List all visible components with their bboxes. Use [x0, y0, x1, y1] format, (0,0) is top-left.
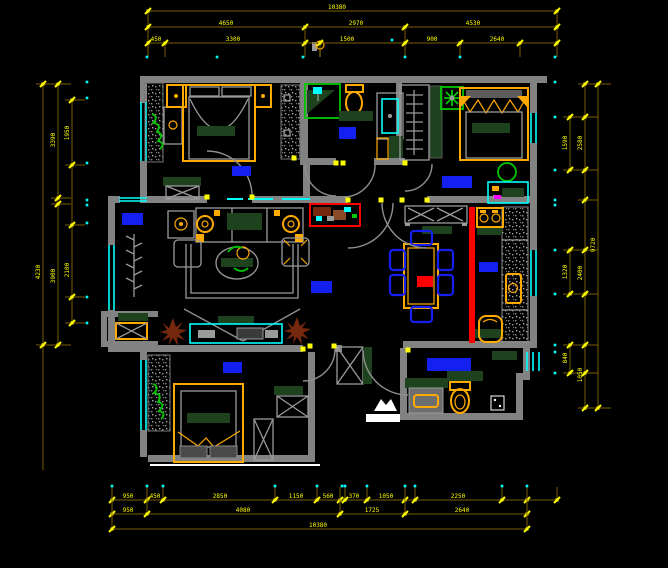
side-table-left: [168, 211, 194, 238]
armchair-left: [174, 240, 201, 267]
datum-dot: [86, 199, 89, 202]
hinge-dot: [292, 156, 297, 161]
dim-text: 9720: [590, 237, 597, 252]
bathroom1-label: [339, 127, 356, 139]
shower: [305, 84, 340, 118]
datum-dot: [86, 81, 89, 84]
datum-dot: [274, 485, 277, 488]
bedroom1: [145, 83, 300, 199]
bathroom2-label: [427, 358, 471, 371]
dim-text: 3390: [50, 132, 57, 147]
hinge-dot: [406, 348, 411, 353]
hinge-dot: [400, 198, 405, 203]
datum-dot: [344, 485, 347, 488]
dim-text: 2640: [455, 507, 470, 514]
datum-dot: [554, 204, 557, 207]
datum-dot: [554, 116, 557, 119]
shelf-green: [274, 386, 303, 395]
cabinet-v: [254, 419, 273, 460]
living-room: [116, 208, 311, 346]
dim-text: 3300: [226, 36, 241, 43]
dim-text: 2850: [213, 493, 228, 500]
bedroom1-label: [232, 166, 251, 176]
double-bed: [174, 384, 243, 462]
bedroom2-window: [531, 113, 536, 143]
dim-text: 950: [123, 507, 134, 514]
hinge-dot: [250, 195, 255, 200]
cad-drawing-area[interactable]: 1038046502970453045033001500900264095045…: [0, 0, 668, 568]
dim-text: 840: [562, 352, 569, 363]
double-bed: [183, 85, 255, 161]
datum-dot: [526, 485, 529, 488]
floor-plant-left: [160, 318, 187, 346]
hinge-dot: [332, 344, 337, 349]
bedroom2-label: [442, 176, 472, 188]
dim-text: 4650: [219, 20, 234, 27]
datum-dot: [341, 485, 344, 488]
storage-cabinet: [337, 347, 372, 384]
datum-dot: [554, 249, 557, 252]
dim-text: 2580: [577, 135, 584, 150]
dresser: [164, 107, 182, 144]
desk-chair: [498, 163, 516, 181]
dim-text: 1320: [562, 264, 569, 279]
datum-dot: [86, 222, 89, 225]
dim-text: 1500: [340, 36, 355, 43]
dim-text: 1150: [289, 493, 304, 500]
vanity: [409, 388, 443, 413]
hinge-dot: [341, 161, 346, 166]
datum-dot: [366, 485, 369, 488]
floor-plant-right: [284, 317, 311, 345]
bench-top: [163, 177, 201, 186]
dim-text: 1590: [562, 135, 569, 150]
corridor: [337, 347, 400, 422]
datum-dot: [404, 485, 407, 488]
hinge-dot: [205, 195, 210, 200]
dim-text: 2640: [490, 36, 505, 43]
dim-text: 1050: [577, 367, 584, 382]
datum-dot: [86, 204, 89, 207]
double-bed: [460, 88, 528, 160]
dim-text: 10380: [309, 522, 327, 529]
tv-shelf: [218, 316, 254, 324]
dim-text: 1950: [64, 125, 71, 140]
dim-text: 1725: [365, 507, 380, 514]
sliding-door-track: [469, 207, 475, 343]
dresser-knob: [169, 121, 177, 129]
dim-text: 450: [151, 36, 162, 43]
dim-text: 370: [349, 493, 360, 500]
datum-dot: [554, 372, 557, 375]
stove: [477, 208, 503, 227]
door-arcs: [207, 151, 432, 395]
datum-dot: [554, 293, 557, 296]
dining-label: [311, 281, 332, 293]
dining-room: [390, 206, 467, 322]
tv-console: [184, 309, 300, 343]
kitchen-window: [531, 250, 536, 296]
living-left-window: [109, 245, 114, 310]
datum-dot: [216, 56, 219, 59]
living-partition-glass: [227, 198, 310, 200]
dim-text: 1050: [379, 493, 394, 500]
dim-text: 4230: [35, 264, 42, 279]
datum-dot: [86, 162, 89, 165]
counter-green: [477, 228, 502, 235]
dim-text: 560: [323, 493, 334, 500]
dim-text: 2250: [451, 493, 466, 500]
sofa-set: [196, 208, 303, 242]
datum-dot: [554, 81, 557, 84]
dim-text: 10380: [328, 4, 346, 11]
datum-dot: [554, 344, 557, 347]
dim-text: 4530: [466, 20, 481, 27]
dim-text: 950: [123, 493, 134, 500]
dim-text: 450: [150, 493, 161, 500]
kitchen: [469, 207, 528, 343]
datum-dot: [554, 351, 557, 354]
living-label: [122, 213, 143, 225]
datum-dot: [146, 56, 149, 59]
datum-dot: [391, 39, 394, 42]
wardrobe-left: [148, 355, 170, 431]
hinge-dot: [425, 198, 430, 203]
datum-dot: [146, 485, 149, 488]
bay-seat: [116, 313, 148, 339]
datum-dot: [86, 322, 89, 325]
hinge-dot: [308, 344, 313, 349]
datum-dot: [459, 56, 462, 59]
hinge-dot: [403, 161, 408, 166]
toilet: [450, 382, 470, 413]
datum-dot: [404, 56, 407, 59]
hinge-dot: [379, 198, 384, 203]
dim-text: 2100: [64, 262, 71, 277]
dim-text: 2400: [577, 265, 584, 280]
closet: [400, 85, 442, 160]
plant-stand: [126, 234, 142, 297]
kitchen-label: [479, 262, 498, 272]
dim-text: 2970: [349, 20, 364, 27]
datum-dot: [86, 296, 89, 299]
entry-console: [310, 204, 360, 226]
datum-dot: [302, 56, 305, 59]
dim-text: 4080: [236, 507, 251, 514]
datum-dot: [86, 97, 89, 100]
hinge-dot: [346, 198, 351, 203]
datum-dot: [414, 485, 417, 488]
datum-dot: [111, 485, 114, 488]
hinge-dot: [301, 347, 306, 352]
floor-drain: [491, 396, 504, 410]
washer: [339, 111, 373, 121]
bedroom3-label: [223, 362, 242, 373]
toilet: [346, 85, 363, 114]
shoe-cabinet: [405, 206, 467, 234]
north-logo-mark: [366, 399, 400, 422]
datum-dot: [554, 169, 557, 172]
cabinet-h: [277, 396, 308, 417]
dining-table: [404, 244, 438, 308]
accent-dot: [494, 195, 501, 199]
datum-dot: [554, 56, 557, 59]
dim-text: 900: [427, 36, 438, 43]
datum-dot: [316, 485, 319, 488]
floorplan-svg[interactable]: 1038046502970453045033001500900264095045…: [0, 0, 668, 568]
hinge-dot: [334, 161, 339, 166]
datum-dot: [162, 485, 165, 488]
datum-dot: [554, 199, 557, 202]
dim-text: 3900: [50, 268, 57, 283]
bathroom1: [305, 84, 403, 159]
bedroom3-window: [141, 360, 146, 430]
coffee-table: [216, 247, 258, 279]
datum-dot: [501, 485, 504, 488]
